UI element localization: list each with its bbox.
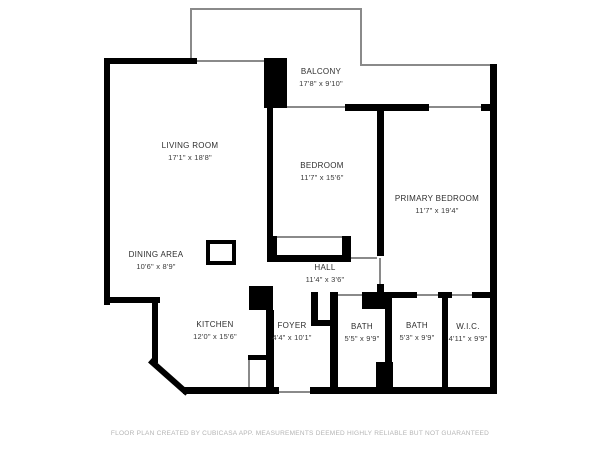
room-label-bath-2: BATH 5'3" x 9'9": [400, 320, 435, 343]
room-dims: 17'1" x 18'8": [162, 152, 219, 163]
room-dims: 5'5" x 9'9": [345, 333, 380, 344]
room-label-balcony: BALCONY 17'8" x 9'10": [299, 66, 343, 89]
room-label-primary-bedroom: PRIMARY BEDROOM 11'7" x 19'4": [395, 193, 479, 216]
bath2-door-line: [417, 294, 438, 296]
wic-door-line: [452, 294, 472, 296]
entry-door-line: [279, 391, 310, 393]
balcony-outline-right: [360, 8, 362, 66]
wall-bedroom-divider: [377, 110, 384, 256]
room-label-foyer: FOYER 4'4" x 10'1": [272, 320, 311, 343]
wall-dining-vertical: [152, 297, 158, 363]
room-label-dining-area: DINING AREA 10'6" x 8'9": [129, 249, 184, 272]
room-name: BEDROOM: [300, 160, 343, 172]
room-dims: 5'3" x 9'9": [400, 332, 435, 343]
room-name: LIVING ROOM: [162, 140, 219, 152]
balcony-outline-left: [190, 8, 192, 60]
entry-closet-door-line: [248, 360, 250, 388]
bath1-door-line: [338, 294, 362, 296]
wall-bath2-wic-divider: [442, 292, 448, 388]
primary-bedroom-window: [429, 106, 481, 108]
room-name: KITCHEN: [193, 319, 237, 331]
kitchen-shaft: [206, 240, 236, 265]
wall-entry-closet-top: [248, 355, 267, 360]
room-name: FOYER: [272, 320, 311, 332]
living-room-balcony-window: [197, 60, 265, 62]
wall-bath2-top: [392, 292, 417, 298]
wall-foyer-block: [249, 286, 273, 310]
bedroom-closet-door-line: [277, 236, 342, 238]
wall-bath1-header-block: [362, 292, 387, 309]
room-name: HALL: [306, 262, 345, 274]
wall-wic-top-right: [472, 292, 492, 298]
balcony-outline-bottom: [360, 64, 492, 66]
room-dims: 11'4" x 3'6": [306, 274, 345, 285]
disclaimer-text: FLOOR PLAN CREATED BY CUBICASA APP. MEAS…: [111, 430, 489, 437]
room-name: DINING AREA: [129, 249, 184, 261]
wall-bottom-left: [183, 387, 279, 394]
room-label-bedroom: BEDROOM 11'7" x 15'6": [300, 160, 343, 183]
room-name: BATH: [345, 321, 380, 333]
floor-plan: BALCONY 17'8" x 9'10" LIVING ROOM 17'1" …: [0, 0, 600, 450]
wall-bath-bottom-block: [376, 362, 393, 388]
room-label-bath-1: BATH 5'5" x 9'9": [345, 321, 380, 344]
room-name: BATH: [400, 320, 435, 332]
wall-bottom-right: [310, 387, 497, 394]
wall-outer-left: [104, 58, 110, 305]
room-label-hall: HALL 11'4" x 3'6": [306, 262, 345, 285]
room-name: BALCONY: [299, 66, 343, 78]
wall-bedroom-top: [345, 104, 429, 111]
room-dims: 4'11" x 9'9": [449, 333, 488, 344]
hall-bedroom-door-line: [351, 257, 377, 259]
room-label-kitchen: KITCHEN 12'0" x 15'6": [193, 319, 237, 342]
bedroom-window: [287, 106, 345, 108]
wall-bedroom-left: [267, 108, 273, 240]
balcony-outline-top: [190, 8, 362, 10]
wall-entry-closet-right: [266, 358, 274, 389]
wall-foyer-closet-right: [330, 292, 338, 388]
room-label-living-room: LIVING ROOM 17'1" x 18'8": [162, 140, 219, 163]
wall-balcony-left-block: [264, 58, 287, 108]
room-dims: 4'4" x 10'1": [272, 332, 311, 343]
room-label-wic: W.I.C. 4'11" x 9'9": [449, 321, 488, 344]
room-dims: 11'7" x 19'4": [395, 205, 479, 216]
wall-living-top: [104, 58, 197, 64]
room-dims: 12'0" x 15'6": [193, 331, 237, 342]
room-dims: 11'7" x 15'6": [300, 172, 343, 183]
wall-closet-right-block: [342, 236, 351, 262]
primary-bedroom-door-line: [379, 258, 381, 286]
room-dims: 17'8" x 9'10": [299, 78, 343, 89]
wall-outer-right: [490, 64, 497, 394]
room-dims: 10'6" x 8'9": [129, 261, 184, 272]
room-name: PRIMARY BEDROOM: [395, 193, 479, 205]
room-name: W.I.C.: [449, 321, 488, 333]
wall-closet-bottom: [267, 255, 351, 262]
